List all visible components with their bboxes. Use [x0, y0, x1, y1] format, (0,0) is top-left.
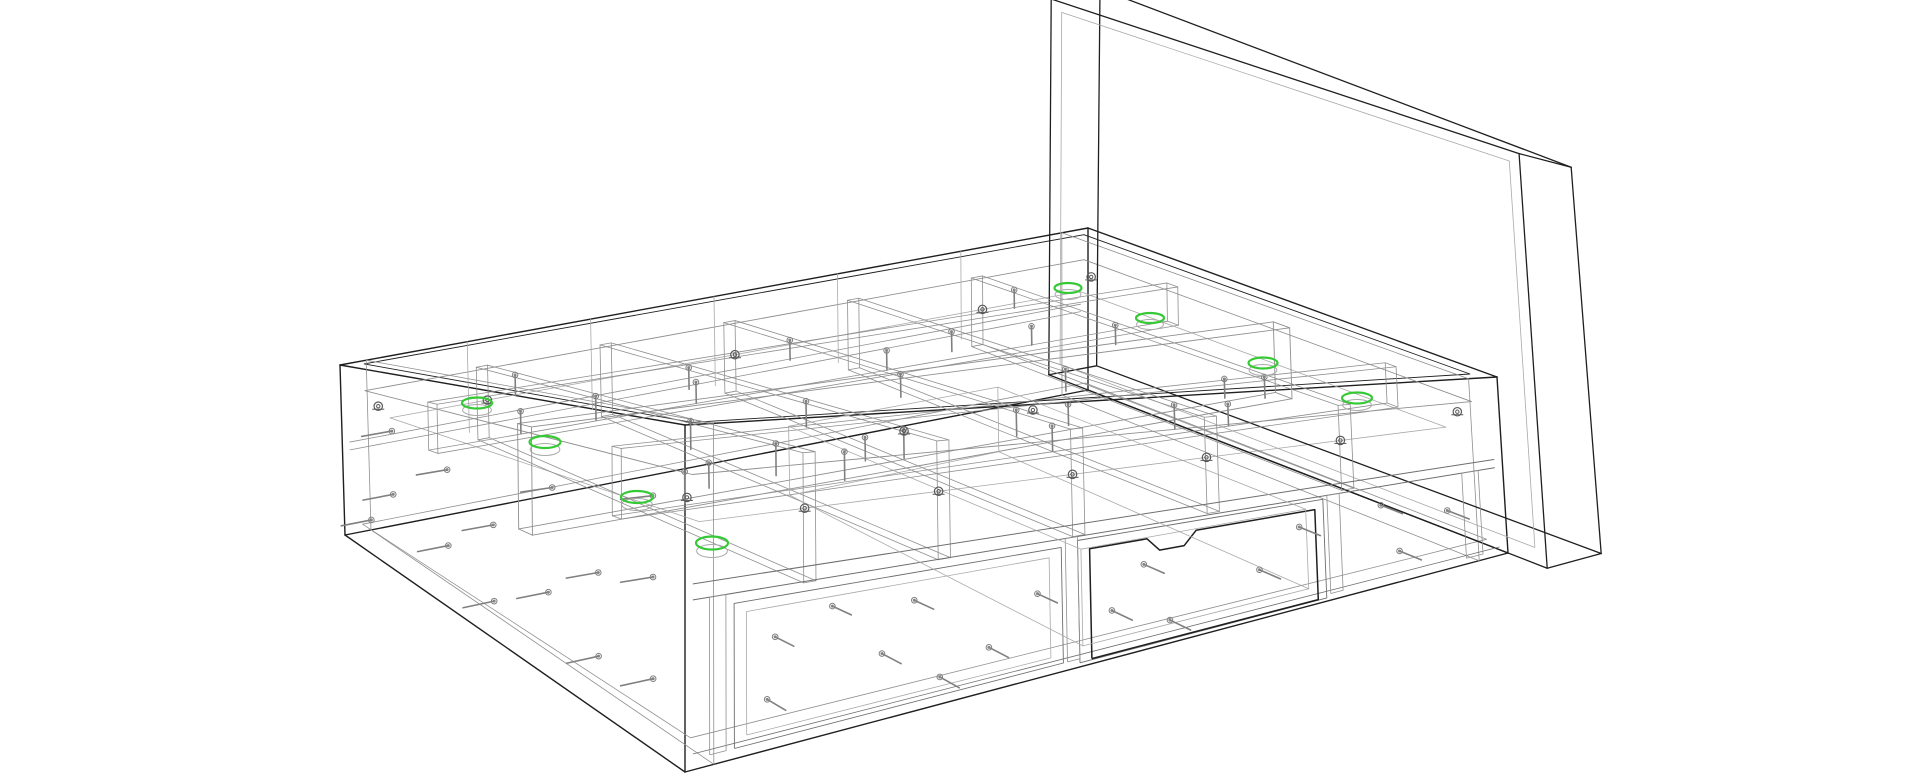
screw-fastener-icon [706, 460, 712, 488]
green-highlight-ellipse [1055, 283, 1082, 293]
screw-fastener-icon [593, 393, 599, 420]
cam-lock-icon [1451, 408, 1463, 416]
highlighted-cam-position [1249, 358, 1278, 376]
screw-fastener-icon [830, 603, 852, 615]
screw-fastener-icon [1222, 376, 1228, 398]
front-stile-right [1462, 470, 1483, 558]
screw-fastener-icon [949, 329, 955, 352]
screw-fastener-icon [772, 634, 793, 646]
cam-lock-icon [372, 402, 384, 410]
screw-fastener-icon [416, 467, 450, 475]
screw-fastener-icon [912, 597, 934, 609]
screw-fastener-icon [517, 589, 551, 598]
screw-fastener-icon [567, 653, 602, 663]
highlighted-cam-position [530, 436, 561, 456]
drawer-front-outline [1090, 510, 1319, 659]
screw-fastener-icon [1257, 567, 1281, 579]
highlighted-cam-position [1136, 313, 1164, 330]
screw-fastener-icon [773, 441, 779, 476]
cam-lock-icon [681, 493, 693, 501]
top-rim-lip [365, 260, 1472, 475]
right-drawer-opening [1078, 499, 1327, 663]
screw-fastener-icon [1397, 548, 1422, 560]
cam-lock-icon [1085, 273, 1097, 281]
screw-fastener-icon [363, 492, 396, 501]
fastener-screws [341, 287, 1469, 710]
front-mid-rail-top [693, 460, 1494, 584]
cross-rib-5 [971, 276, 1354, 490]
screw-fastener-icon [986, 645, 1009, 658]
screw-fastener-icon [463, 598, 497, 607]
screw-fastener-icon [1011, 287, 1017, 308]
screw-fastener-icon [1141, 562, 1164, 574]
screw-fastener-icon [621, 574, 656, 582]
screw-fastener-icon [462, 522, 496, 530]
screw-fastener-icon [688, 418, 694, 449]
bed-structure [340, 0, 1601, 772]
screw-fastener-icon [1109, 608, 1132, 620]
screw-fastener-icon [1296, 524, 1320, 535]
front-kick-line [693, 547, 1499, 754]
rear-rib-vertical-4 [837, 274, 838, 363]
screw-fastener-icon [362, 428, 395, 436]
highlighted-cam-position [696, 537, 728, 558]
screw-fastener-icon [1378, 502, 1402, 513]
screw-fastener-icon [341, 517, 374, 526]
screw-fastener-icon [862, 435, 868, 461]
screw-fastener-icon [1013, 407, 1019, 436]
screw-fastener-icon [1049, 423, 1055, 451]
screw-fastener-icon [566, 570, 601, 578]
screw-fastener-icon [764, 697, 785, 711]
screw-fastener-icon [842, 449, 848, 480]
left-drawer-bay [734, 547, 1063, 748]
rear-rib-vertical-2 [591, 319, 593, 409]
screw-fastener-icon [621, 676, 656, 686]
screw-fastener-icon [1035, 591, 1058, 603]
screw-fastener-icon [1065, 402, 1071, 426]
canvas-background [0, 0, 1916, 782]
cam-lock-icon [1027, 406, 1039, 414]
bed-assembly-wireframe [0, 0, 1916, 782]
front-mid-rail-bottom [693, 468, 1494, 600]
screw-fastener-icon [879, 651, 901, 664]
screw-fastener-icon [898, 371, 904, 397]
green-highlight-ellipse [530, 436, 561, 448]
slat-ledge [390, 292, 1446, 522]
green-highlight-ellipse [1136, 313, 1164, 323]
screw-fastener-icon [1029, 323, 1035, 345]
screw-fastener-icon [521, 485, 555, 492]
screw-fastener-icon [418, 543, 452, 552]
right-end-inner-panel [1062, 233, 1479, 561]
screw-fastener-icon [1112, 322, 1118, 344]
left-drawer-bay-inner [746, 558, 1051, 735]
